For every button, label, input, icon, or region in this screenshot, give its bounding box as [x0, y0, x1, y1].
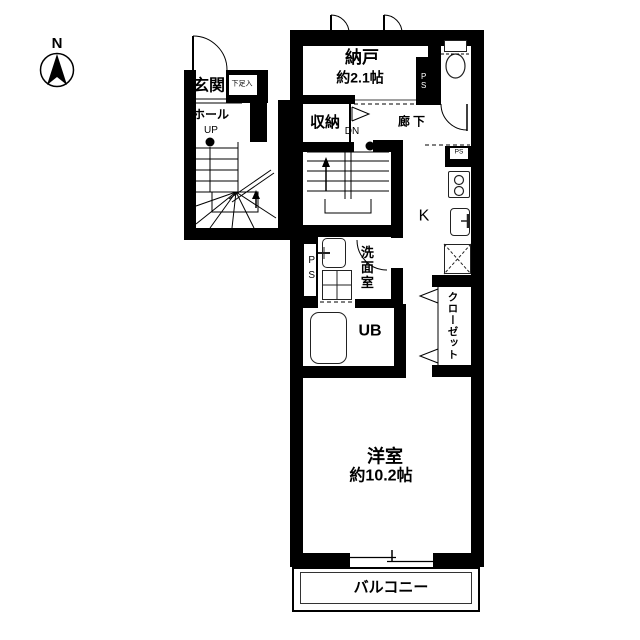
refrigerator-cross — [444, 244, 471, 274]
nando-size-label: 約2.1帖 — [336, 71, 383, 86]
shuno-label: 収納 — [310, 115, 340, 131]
washbasin-faucet — [318, 247, 330, 259]
unit-bath-label: UB — [358, 324, 381, 341]
corridor-label: 廊下 — [398, 116, 428, 129]
toilet-door-swing — [441, 104, 467, 131]
stair-2f — [307, 142, 389, 214]
washroom-label: 洗面室 — [359, 246, 373, 291]
closet-doors — [420, 287, 438, 365]
ps-duct-corner-label: PS — [455, 150, 464, 157]
kitchen-label: K — [419, 209, 430, 226]
genkan-label: 玄関 — [193, 79, 225, 96]
stove-burners — [455, 176, 464, 196]
ps-duct-top-label: PS — [419, 72, 427, 90]
down-label: DN — [345, 127, 359, 138]
dashed-openings — [320, 104, 470, 302]
up-label: UP — [204, 126, 218, 137]
balcony-window — [350, 550, 433, 562]
sink-faucet — [461, 214, 470, 228]
nando-label: 納戸 — [345, 49, 379, 67]
floor-plan: N 玄関 下足入 ホール UP 納戸 約2.1帖 PS 収納 廊下 DN K P… — [0, 0, 640, 640]
washer-pan-cross — [322, 270, 352, 300]
genkan-threshold — [196, 99, 242, 103]
toilet-bowl — [441, 54, 470, 78]
entrance-door-swing — [193, 36, 227, 70]
balcony-label: バルコニー — [354, 580, 429, 596]
shuno-door-fold — [352, 107, 369, 121]
casement-windows — [331, 15, 402, 33]
stair-1f — [196, 138, 276, 229]
main-room-size-label: 約10.2帖 — [349, 469, 412, 486]
plan-linework — [0, 0, 640, 640]
compass-north-label: N — [52, 36, 63, 52]
main-room-label: 洋室 — [367, 448, 403, 467]
compass-icon — [41, 54, 74, 87]
closet-label: クローゼット — [446, 292, 457, 361]
shoebox-label: 下足入 — [232, 80, 253, 87]
ps-duct-mid-label: PS — [306, 255, 317, 285]
hall-label: ホール — [193, 109, 229, 122]
